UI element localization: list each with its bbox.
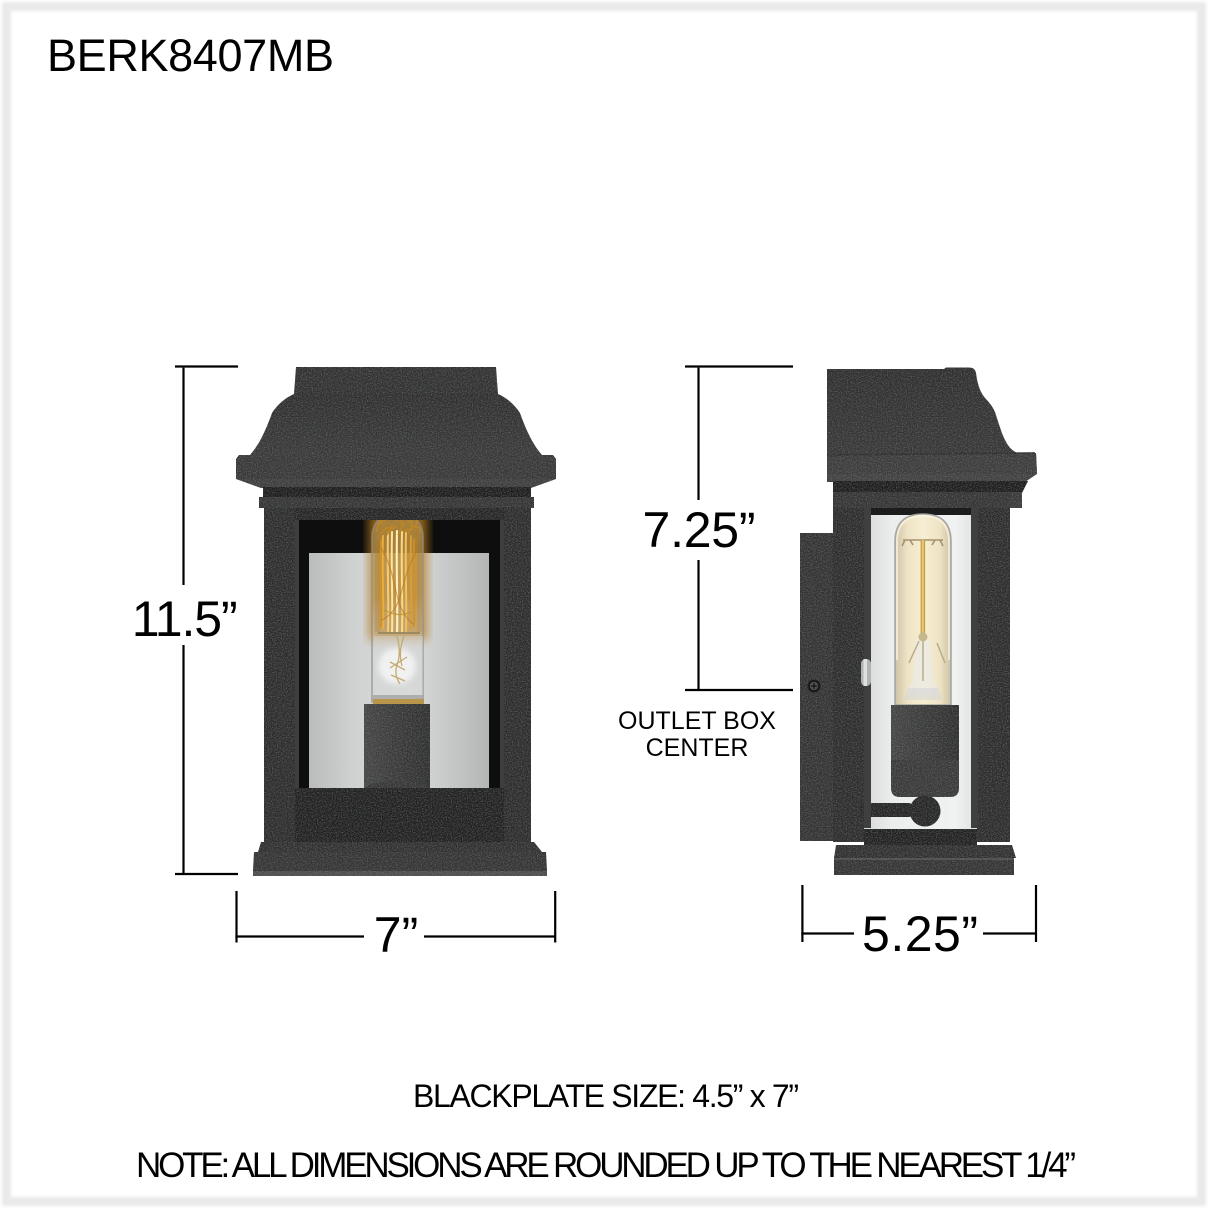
svg-text:CENTER: CENTER: [646, 734, 749, 762]
svg-text:5.25”: 5.25”: [862, 906, 978, 962]
svg-text:NOTE: ALL DIMENSIONS ARE ROUND: NOTE: ALL DIMENSIONS ARE ROUNDED UP TO T…: [136, 1146, 1076, 1185]
svg-text:7”: 7”: [374, 907, 418, 963]
svg-text:11.5”: 11.5”: [132, 591, 238, 647]
svg-text:7.25”: 7.25”: [643, 502, 756, 558]
svg-text:BERK8407MB: BERK8407MB: [47, 30, 334, 81]
svg-text:BLACKPLATE SIZE: 4.5” x 7”: BLACKPLATE SIZE: 4.5” x 7”: [413, 1078, 799, 1114]
svg-text:OUTLET BOX: OUTLET BOX: [618, 707, 776, 735]
